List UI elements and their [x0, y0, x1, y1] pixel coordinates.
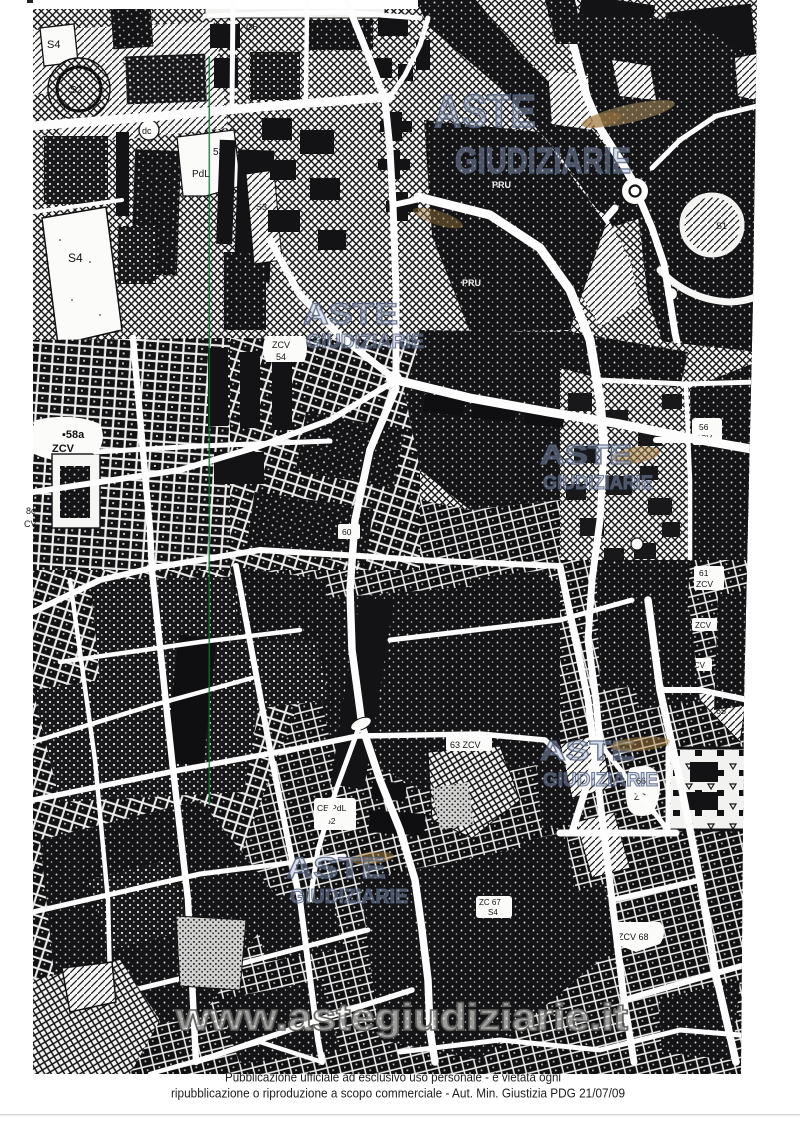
svg-text:PRU: PRU — [462, 278, 481, 288]
svg-text:ZCV: ZCV — [52, 443, 75, 455]
svg-text:PRU: PRU — [492, 180, 511, 190]
svg-text:ASTE: ASTE — [303, 298, 398, 331]
svg-text:www.astegiudiziarie.it: www.astegiudiziarie.it — [175, 997, 629, 1039]
svg-text:ZC 67: ZC 67 — [479, 898, 501, 907]
svg-text:S4: S4 — [68, 251, 83, 265]
svg-text:61: 61 — [699, 568, 709, 578]
svg-text:S4: S4 — [488, 908, 498, 917]
svg-text:GIUDIZIARIE: GIUDIZIARIE — [290, 886, 408, 908]
svg-text:PdL: PdL — [192, 169, 210, 180]
svg-text:S1: S1 — [716, 221, 727, 231]
svg-text:GIUDIZIARIE: GIUDIZIARIE — [543, 770, 658, 791]
svg-text:56: 56 — [699, 422, 709, 432]
svg-text:ZCV 68: ZCV 68 — [618, 932, 649, 942]
svg-text:ASTE: ASTE — [540, 439, 632, 470]
svg-text:C6: C6 — [246, 22, 258, 32]
svg-text:ripubblicazione o riproduzione: ripubblicazione o riproduzione a scopo c… — [171, 1086, 625, 1101]
svg-text:ZCV: ZCV — [272, 340, 290, 350]
svg-text:GIUDIZIARIE: GIUDIZIARIE — [543, 473, 653, 494]
svg-text:8c: 8c — [26, 506, 36, 516]
svg-text:S2: S2 — [122, 56, 135, 67]
svg-text:dc: dc — [142, 126, 152, 136]
svg-text:ASTE: ASTE — [286, 852, 386, 885]
svg-text:GIUDIZIARIE: GIUDIZIARIE — [306, 331, 424, 353]
svg-text:S3: S3 — [256, 202, 267, 212]
svg-text:63 ZCV: 63 ZCV — [450, 740, 481, 750]
svg-text:CV: CV — [24, 519, 37, 529]
svg-text:54: 54 — [276, 352, 286, 362]
svg-text:ZCV: ZCV — [695, 621, 712, 630]
svg-text:60: 60 — [342, 527, 352, 537]
svg-text:GIUDIZIARIE: GIUDIZIARIE — [455, 140, 631, 181]
svg-text:ZCV: ZCV — [696, 579, 713, 589]
svg-text:ASTE: ASTE — [434, 85, 536, 137]
svg-text:S4: S4 — [47, 39, 60, 51]
svg-text:▪58a: ▪58a — [62, 429, 85, 441]
svg-text:S2: S2 — [70, 85, 83, 96]
svg-text:Pubblicazione ufficiale ad esc: Pubblicazione ufficiale ad esclusivo uso… — [225, 1070, 561, 1085]
